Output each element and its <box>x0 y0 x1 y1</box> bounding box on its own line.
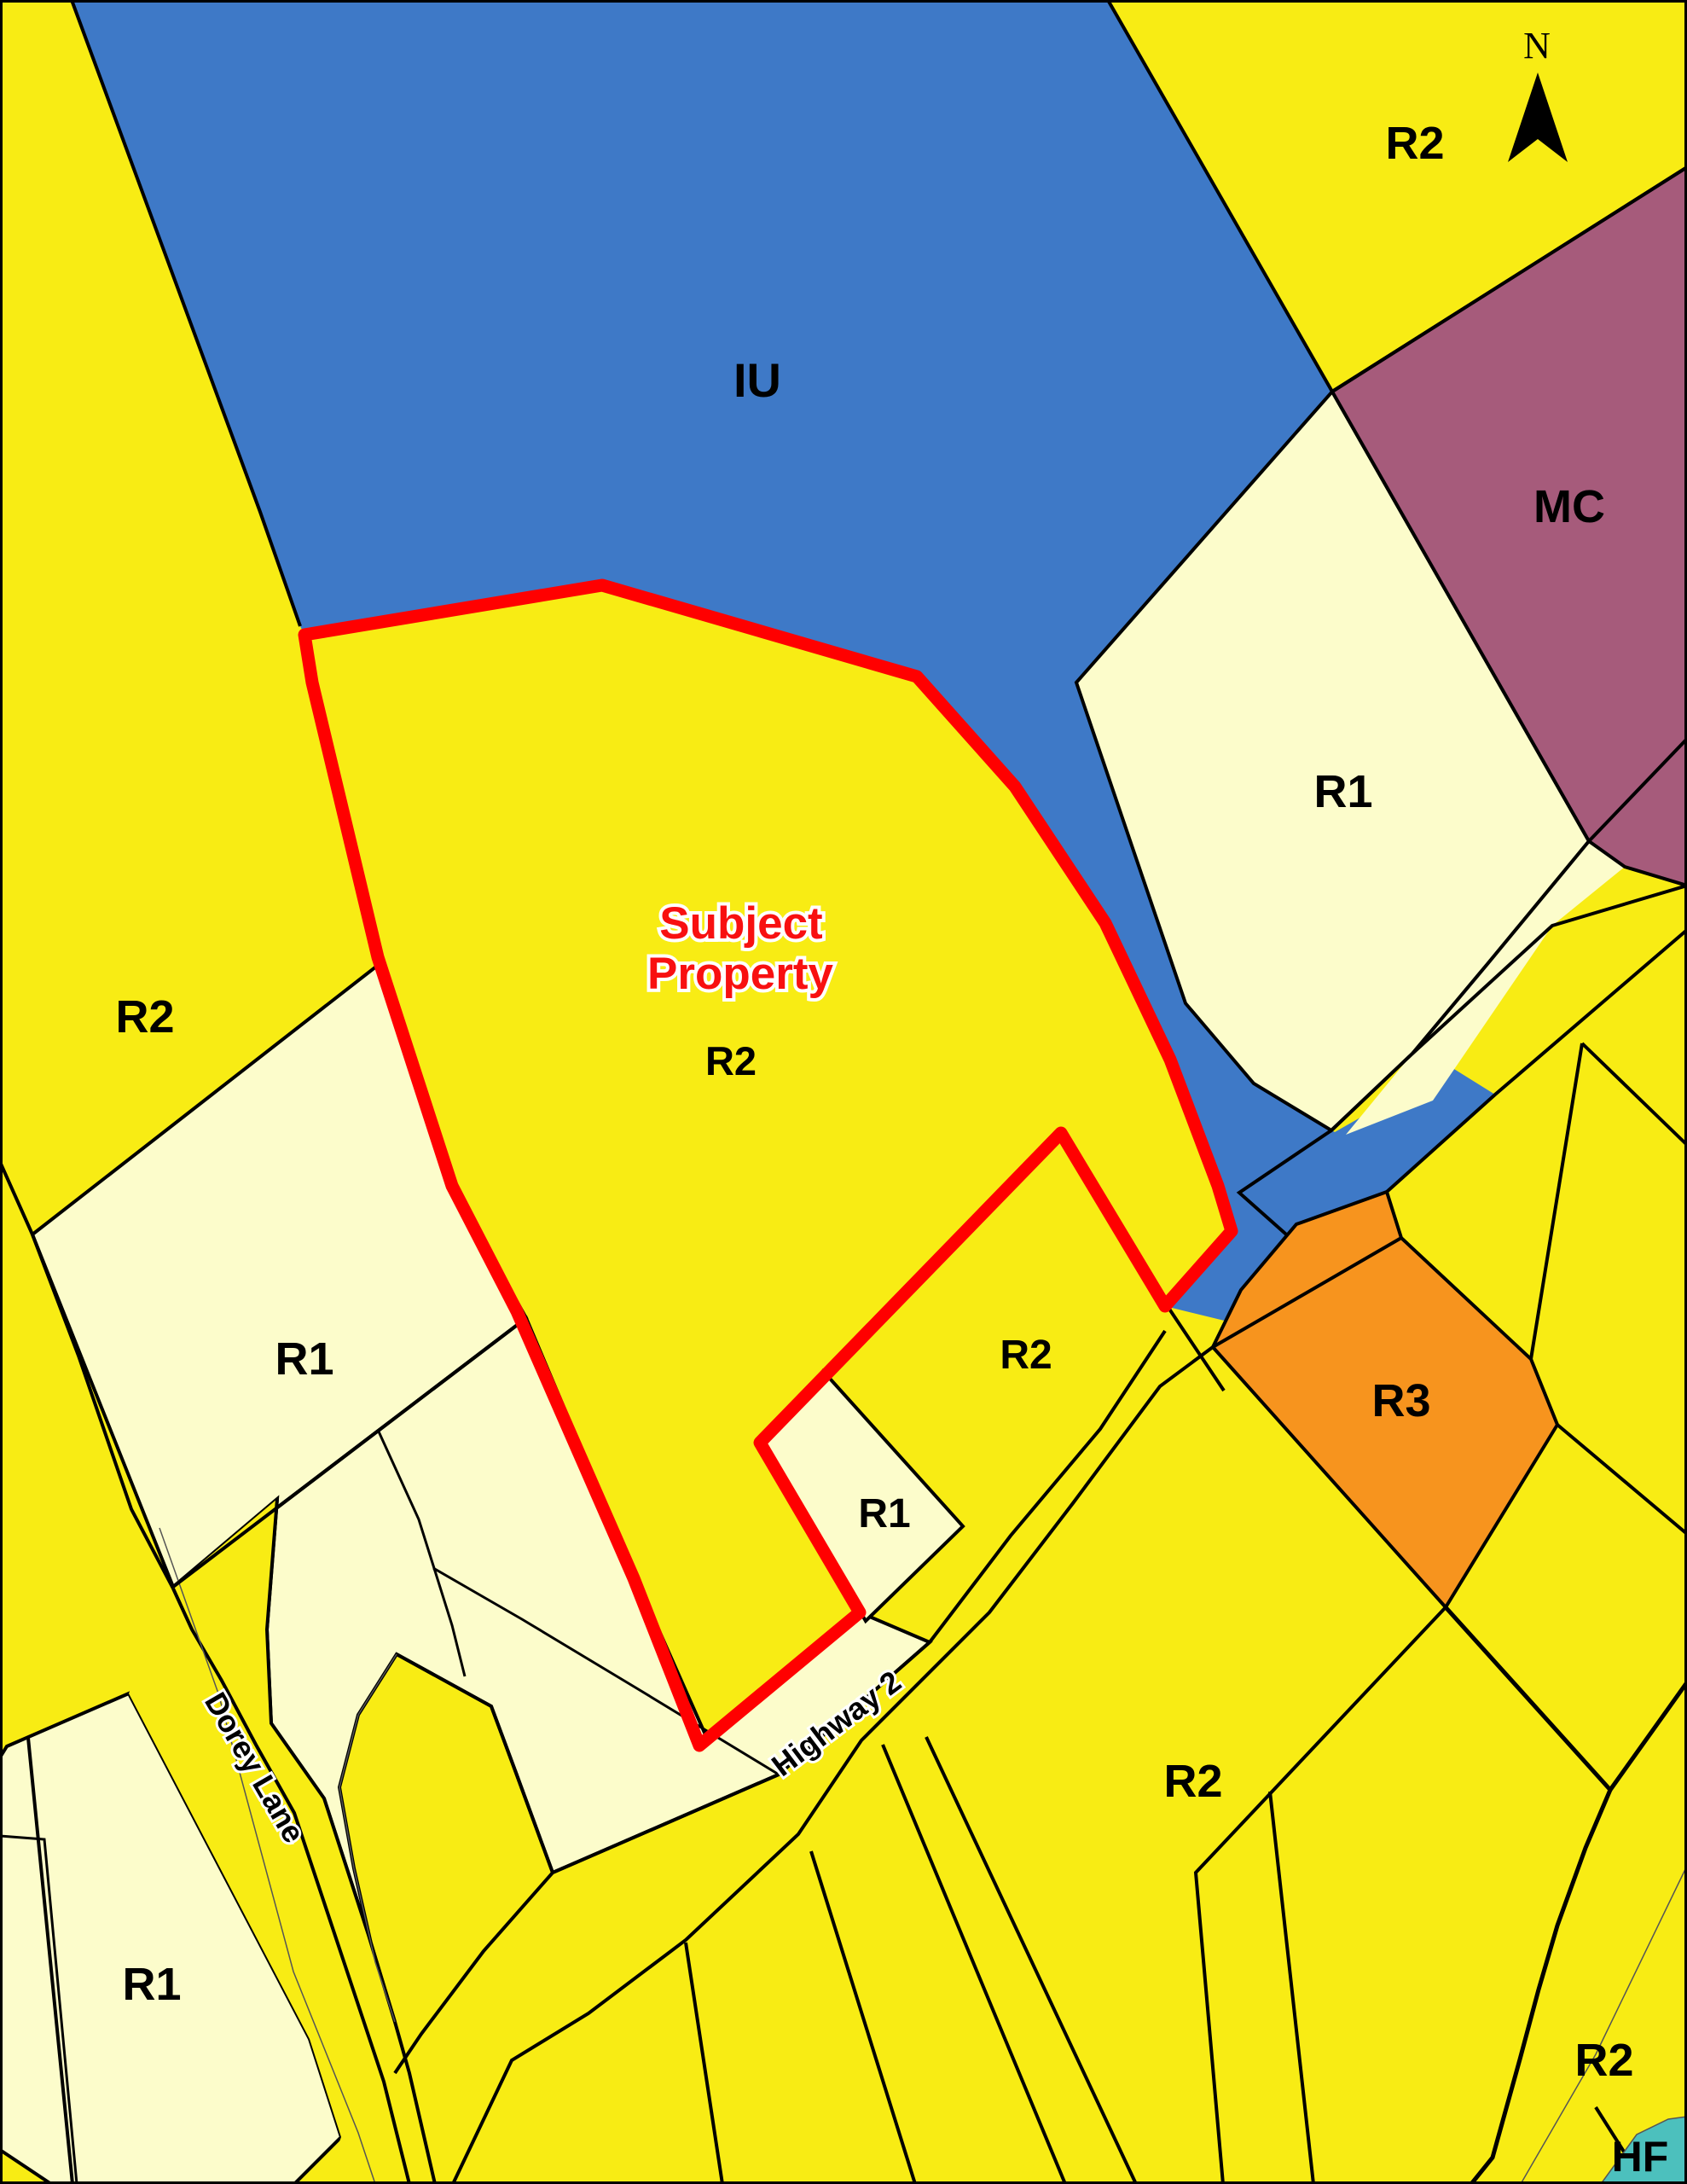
svg-text:R2: R2 <box>705 1038 757 1083</box>
svg-text:R1: R1 <box>1313 766 1372 817</box>
svg-text:R1: R1 <box>122 1959 181 2010</box>
svg-text:R2: R2 <box>1574 2035 1633 2086</box>
svg-text:R1: R1 <box>275 1333 333 1385</box>
svg-text:R2: R2 <box>115 991 174 1043</box>
svg-text:R3: R3 <box>1371 1375 1430 1426</box>
svg-text:R1: R1 <box>858 1491 910 1536</box>
svg-text:N: N <box>1523 25 1551 67</box>
svg-text:Subject: Subject <box>659 898 822 949</box>
svg-text:MC: MC <box>1533 481 1605 532</box>
svg-text:IU: IU <box>733 353 781 407</box>
svg-text:Property: Property <box>647 949 833 999</box>
svg-text:R2: R2 <box>1163 1756 1222 1807</box>
svg-text:R2: R2 <box>1000 1333 1052 1378</box>
svg-text:HF: HF <box>1612 2133 1669 2181</box>
svg-text:R2: R2 <box>1385 118 1444 169</box>
